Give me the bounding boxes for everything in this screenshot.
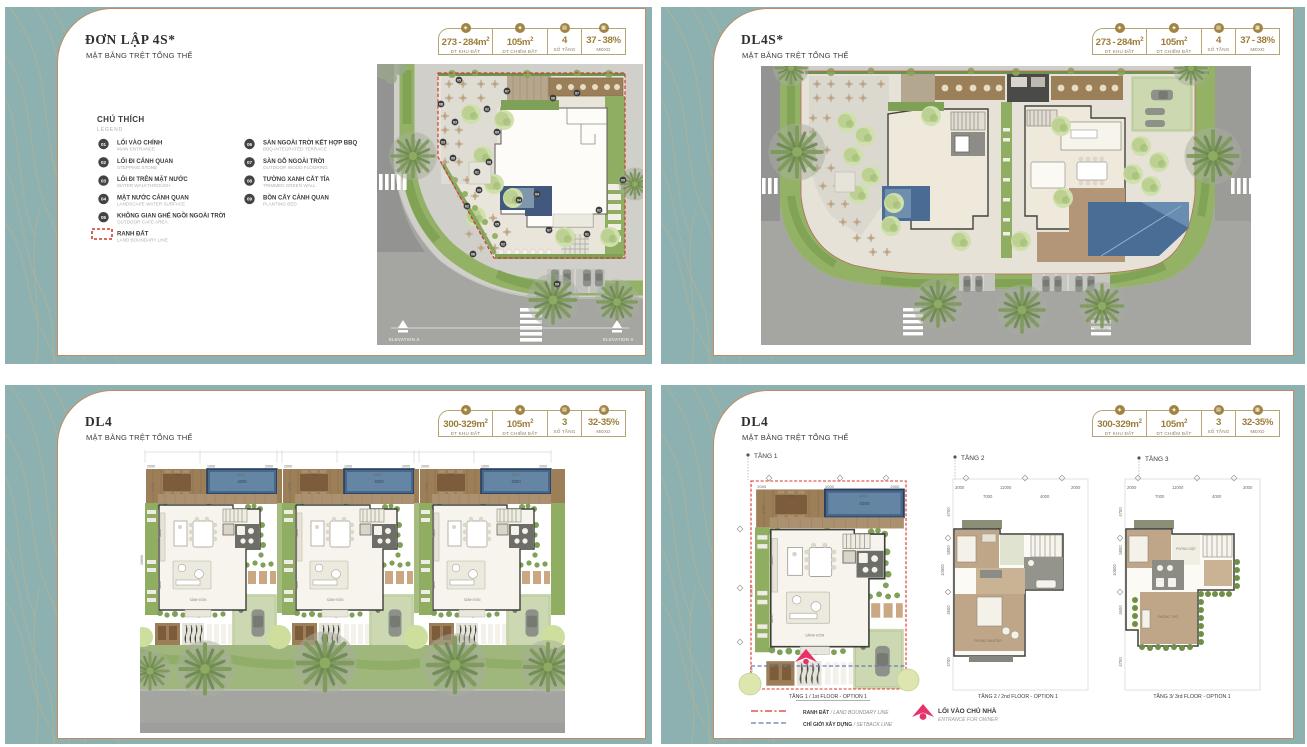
svg-text:CHỈ GIỚI XÂY DỰNG / SETBACK LI: CHỈ GIỚI XÂY DỰNG / SETBACK LINE — [803, 720, 893, 728]
svg-text:06: 06 — [247, 142, 253, 147]
svg-text:7000: 7000 — [1155, 494, 1165, 499]
svg-text:TẦNG 3: TẦNG 3 — [1145, 453, 1169, 463]
svg-text:11000: 11000 — [1000, 485, 1012, 490]
svg-text:PHÒNG GIẶT: PHÒNG GIẶT — [1176, 546, 1196, 551]
svg-text:01: 01 — [101, 142, 107, 147]
svg-text:TẦNG 1: TẦNG 1 — [754, 450, 778, 460]
svg-text:TƯỜNG XANH CẮT TỈA: TƯỜNG XANH CẮT TỈA — [263, 175, 330, 183]
svg-text:05: 05 — [495, 223, 499, 227]
svg-text:02: 02 — [597, 209, 601, 213]
svg-text:LỐI VÀO CHÍNH: LỐI VÀO CHÍNH — [117, 139, 162, 147]
svg-text:TẦNG 3/ 3rd FLOOR - OPTION 1: TẦNG 3/ 3rd FLOOR - OPTION 1 — [1153, 693, 1230, 700]
svg-text:4600: 4600 — [946, 605, 951, 615]
svg-text:03: 03 — [453, 121, 457, 125]
svg-text:01: 01 — [585, 233, 589, 237]
svg-text:02: 02 — [501, 243, 505, 247]
svg-text:06: 06 — [551, 97, 555, 101]
svg-text:OUTDOOR WOOD FLOORING: OUTDOOR WOOD FLOORING — [263, 165, 328, 170]
svg-text:09: 09 — [495, 131, 499, 135]
svg-text:09: 09 — [247, 197, 253, 202]
svg-text:LỐI ĐI TRÊN MẶT NƯỚC: LỐI ĐI TRÊN MẶT NƯỚC — [117, 175, 188, 183]
svg-text:4600: 4600 — [1118, 605, 1123, 615]
svg-text:TẦNG 2: TẦNG 2 — [961, 452, 985, 462]
svg-text:LAND BOUNDARY LINE: LAND BOUNDARY LINE — [117, 238, 168, 243]
svg-text:TẦNG 2 / 2nd FLOOR - OPTION 1: TẦNG 2 / 2nd FLOOR - OPTION 1 — [978, 693, 1058, 700]
svg-text:08: 08 — [247, 178, 253, 183]
svg-text:SÀN NGOÀI TRỜI KẾT HỢP BBQ: SÀN NGOÀI TRỜI KẾT HỢP BBQ — [263, 139, 357, 147]
svg-text:PHÒNG MASTER: PHÒNG MASTER — [974, 638, 1002, 643]
svg-text:05: 05 — [457, 79, 461, 83]
svg-text:4700: 4700 — [946, 657, 951, 667]
svg-text:07: 07 — [505, 90, 509, 94]
svg-text:02: 02 — [101, 160, 107, 165]
svg-text:04: 04 — [535, 193, 539, 197]
svg-text:LỐI ĐI CẢNH QUAN: LỐI ĐI CẢNH QUAN — [117, 158, 173, 165]
svg-text:08: 08 — [487, 161, 491, 165]
svg-text:4700: 4700 — [1118, 507, 1123, 517]
svg-text:09: 09 — [451, 157, 455, 161]
svg-text:PLANTING BED: PLANTING BED — [263, 201, 297, 206]
svg-text:RANH ĐẤT: RANH ĐẤT — [117, 231, 149, 238]
svg-text:LEGEND: LEGEND — [97, 127, 123, 133]
svg-text:ENTRANCE FOR OWNER: ENTRANCE FOR OWNER — [938, 717, 998, 723]
svg-text:CHÚ THÍCH: CHÚ THÍCH — [97, 115, 145, 124]
svg-text:STEPPING STONE: STEPPING STONE — [117, 165, 157, 170]
svg-text:ELEVATION A: ELEVATION A — [389, 337, 420, 342]
svg-text:2000: 2000 — [1071, 485, 1081, 490]
svg-text:4700: 4700 — [1118, 657, 1123, 667]
svg-text:MẶT NƯỚC CẢNH QUAN: MẶT NƯỚC CẢNH QUAN — [117, 193, 189, 201]
svg-text:02: 02 — [485, 108, 489, 112]
svg-text:10600: 10600 — [1112, 564, 1117, 576]
svg-text:ELEVATION A: ELEVATION A — [603, 337, 634, 342]
svg-text:MAIN ENTRANCE: MAIN ENTRANCE — [117, 147, 155, 152]
svg-text:5800: 5800 — [946, 545, 951, 555]
svg-text:04: 04 — [517, 199, 521, 203]
svg-text:2000: 2000 — [1243, 485, 1253, 490]
svg-text:09: 09 — [621, 179, 625, 183]
svg-text:5800: 5800 — [1118, 545, 1123, 555]
svg-text:10600: 10600 — [940, 564, 945, 576]
svg-text:BBQ-INTEGRATED TERRACE: BBQ-INTEGRATED TERRACE — [263, 147, 327, 152]
svg-text:TẦNG 1 / 1st FLOOR - OPTION 1: TẦNG 1 / 1st FLOOR - OPTION 1 — [789, 693, 867, 700]
svg-text:07: 07 — [247, 160, 253, 165]
svg-text:05: 05 — [101, 215, 107, 220]
svg-text:SÀN GỖ NGOÀI TRỜI: SÀN GỖ NGOÀI TRỜI — [263, 157, 325, 165]
svg-text:BỒN CÂY CẢNH QUAN: BỒN CÂY CẢNH QUAN — [263, 194, 329, 201]
svg-text:2000: 2000 — [1127, 485, 1137, 490]
svg-text:7000: 7000 — [983, 494, 993, 499]
svg-text:WATER WALKTHROUGH: WATER WALKTHROUGH — [117, 183, 170, 188]
svg-text:4000: 4000 — [1212, 494, 1222, 499]
svg-text:PHÒNG THỜ: PHÒNG THỜ — [1158, 614, 1179, 619]
svg-text:4700: 4700 — [946, 507, 951, 517]
svg-text:06: 06 — [471, 253, 475, 257]
svg-text:03: 03 — [101, 178, 107, 183]
svg-text:01: 01 — [475, 171, 479, 175]
svg-text:07: 07 — [547, 229, 551, 233]
svg-text:04: 04 — [101, 197, 107, 202]
svg-text:KHÔNG GIAN GHẾ NGỒI NGOÀI TRỜI: KHÔNG GIAN GHẾ NGỒI NGOÀI TRỜI — [117, 212, 226, 220]
svg-text:2000: 2000 — [955, 485, 965, 490]
svg-text:07: 07 — [575, 92, 579, 96]
svg-text:TRIMMED GREEN WALL: TRIMMED GREEN WALL — [263, 183, 316, 188]
svg-text:LANDSCAPE WATER SURFACE: LANDSCAPE WATER SURFACE — [117, 201, 185, 206]
svg-text:RANH ĐẤT / LAND BOUNDARY LINE: RANH ĐẤT / LAND BOUNDARY LINE — [803, 709, 889, 716]
svg-text:LỐI VÀO CHỦ NHÀ: LỐI VÀO CHỦ NHÀ — [938, 705, 997, 715]
svg-text:03: 03 — [441, 141, 445, 145]
svg-text:4000: 4000 — [1040, 494, 1050, 499]
svg-text:08: 08 — [439, 103, 443, 107]
svg-text:11000: 11000 — [1172, 485, 1184, 490]
svg-text:09: 09 — [555, 283, 559, 287]
svg-text:02: 02 — [465, 205, 469, 209]
svg-text:09: 09 — [477, 189, 481, 193]
svg-text:OUTDOOR CAFÉ AREA: OUTDOOR CAFÉ AREA — [117, 219, 168, 225]
